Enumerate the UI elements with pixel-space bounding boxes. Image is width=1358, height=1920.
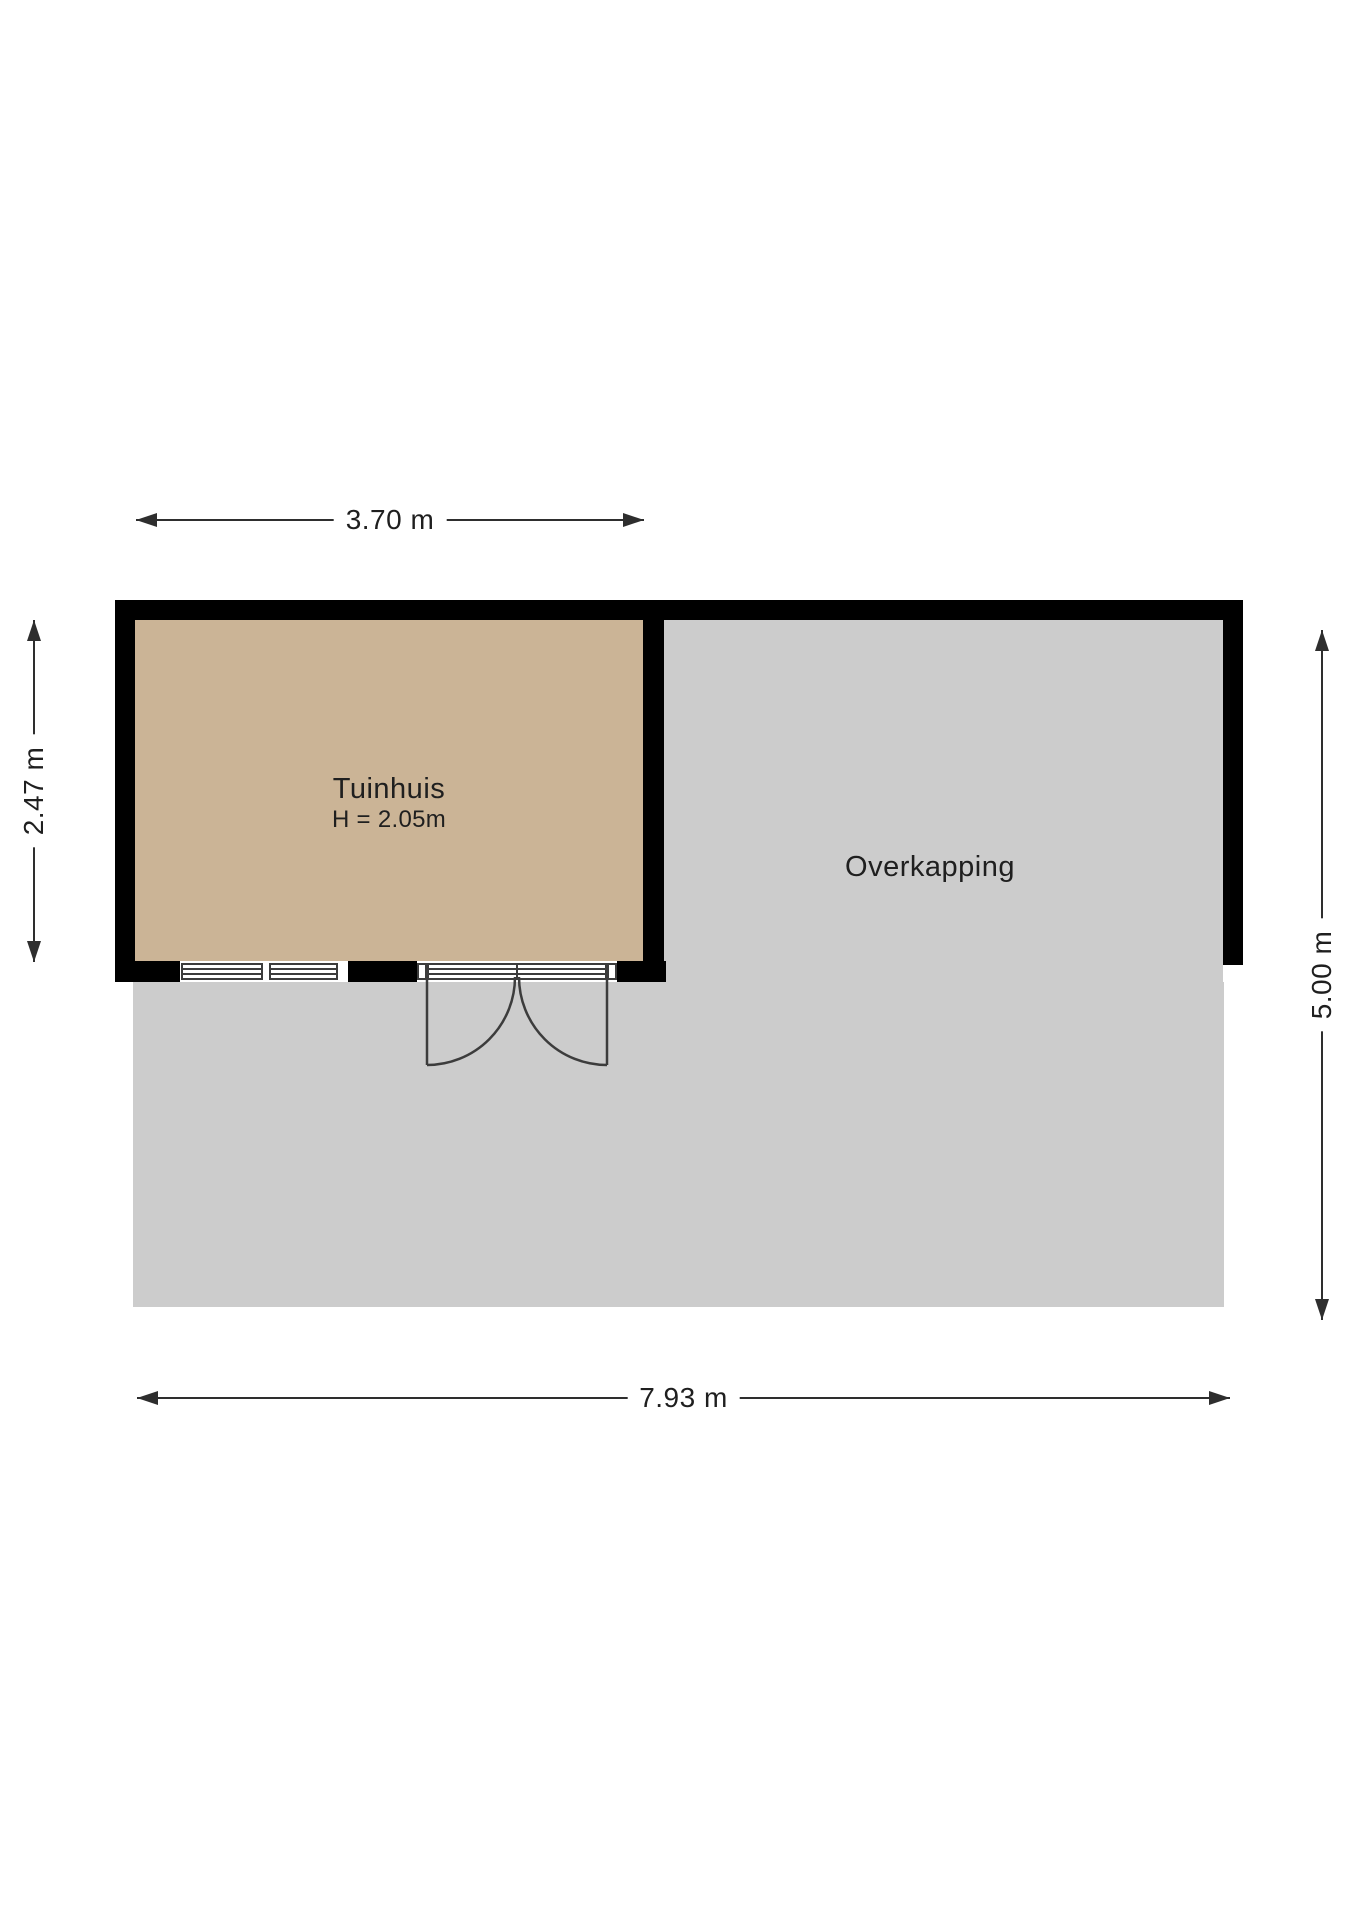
tuinhuis-label-block: Tuinhuis H = 2.05m xyxy=(135,772,643,833)
dimension-label-tuinhuis-depth: 2.47 m xyxy=(18,735,50,848)
arrowhead-down-icon xyxy=(1315,1299,1329,1320)
arrowhead-up-icon xyxy=(1315,630,1329,651)
wall-bottom-segment-1 xyxy=(115,961,181,982)
window-glazing-line xyxy=(183,973,261,975)
floor-plan: Tuinhuis H = 2.05m Overkapping 3.70 m 2.… xyxy=(0,0,1358,1920)
wall-right xyxy=(1223,620,1243,965)
dimension-label-tuinhuis-width: 3.70 m xyxy=(334,504,447,536)
dimension-tuinhuis-depth: 2.47 m xyxy=(20,620,48,962)
wall-divider xyxy=(643,620,664,982)
dimension-total-width: 7.93 m xyxy=(137,1384,1230,1412)
wall-top xyxy=(115,600,1243,620)
arrowhead-up-icon xyxy=(27,620,41,641)
dimension-tuinhuis-width: 3.70 m xyxy=(136,506,644,534)
window-glazing-line xyxy=(271,968,336,970)
overkapping-room xyxy=(664,620,1223,983)
door-swing-arcs xyxy=(400,950,700,1075)
tuinhuis-height-label: H = 2.05m xyxy=(135,806,643,833)
overkapping-label: Overkapping xyxy=(780,850,1080,884)
arrowhead-left-icon xyxy=(137,1391,158,1405)
window-glazing-line xyxy=(271,973,336,975)
dimension-label-total-width: 7.93 m xyxy=(627,1382,740,1414)
arrowhead-right-icon xyxy=(1209,1391,1230,1405)
arrowhead-right-icon xyxy=(623,513,644,527)
window-glazing-line xyxy=(183,968,261,970)
window-2 xyxy=(269,963,338,980)
wall-left xyxy=(115,620,135,982)
arrowhead-down-icon xyxy=(27,941,41,962)
dimension-label-total-depth: 5.00 m xyxy=(1306,919,1338,1032)
window-1 xyxy=(181,963,263,980)
tuinhuis-label: Tuinhuis xyxy=(135,772,643,806)
dimension-total-depth: 5.00 m xyxy=(1308,630,1336,1320)
arrowhead-left-icon xyxy=(136,513,157,527)
